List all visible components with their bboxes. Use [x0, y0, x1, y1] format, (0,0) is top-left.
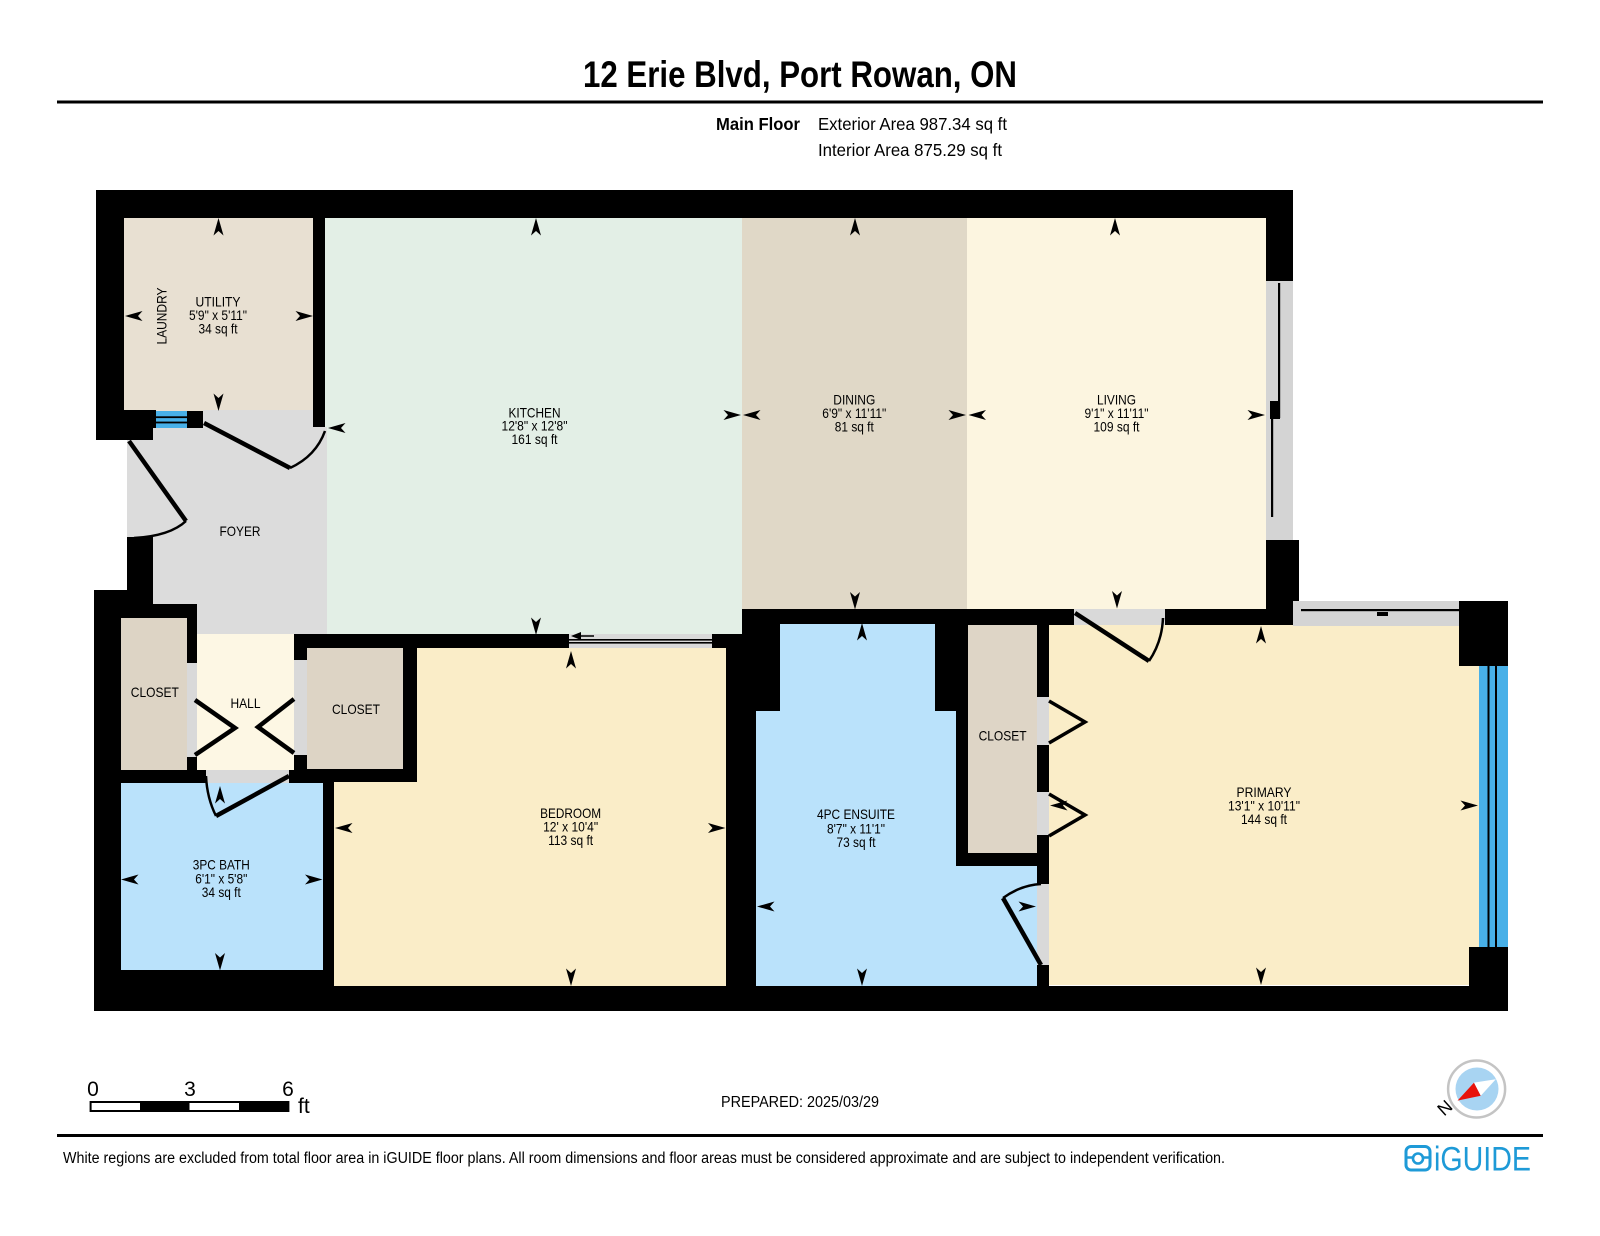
- svg-text:HALL: HALL: [231, 695, 261, 711]
- svg-text:73 sq ft: 73 sq ft: [837, 834, 876, 850]
- svg-text:CLOSET: CLOSET: [979, 728, 1027, 744]
- svg-text:Main Floor: Main Floor: [716, 114, 800, 134]
- svg-text:iGUIDE: iGUIDE: [1434, 1141, 1531, 1179]
- svg-text:ft: ft: [298, 1095, 310, 1118]
- svg-text:Exterior Area 987.34 sq ft: Exterior Area 987.34 sq ft: [818, 114, 1007, 134]
- svg-text:6: 6: [282, 1078, 294, 1101]
- svg-text:0: 0: [87, 1078, 99, 1101]
- svg-text:FOYER: FOYER: [220, 523, 261, 539]
- svg-text:LAUNDRY: LAUNDRY: [154, 287, 170, 345]
- svg-text:113 sq ft: 113 sq ft: [548, 832, 593, 848]
- svg-text:81 sq ft: 81 sq ft: [835, 419, 874, 435]
- svg-text:109 sq ft: 109 sq ft: [1094, 419, 1140, 435]
- svg-text:144 sq ft: 144 sq ft: [1241, 811, 1287, 827]
- svg-text:34 sq ft: 34 sq ft: [202, 884, 241, 900]
- svg-text:White regions are excluded fro: White regions are excluded from total fl…: [63, 1150, 1225, 1167]
- svg-text:12 Erie Blvd, Port Rowan, ON: 12 Erie Blvd, Port Rowan, ON: [583, 54, 1017, 95]
- svg-text:CLOSET: CLOSET: [131, 684, 179, 700]
- svg-text:CLOSET: CLOSET: [332, 701, 380, 717]
- svg-text:PREPARED: 2025/03/29: PREPARED: 2025/03/29: [721, 1094, 879, 1111]
- svg-text:3: 3: [184, 1078, 196, 1101]
- svg-text:161 sq ft: 161 sq ft: [512, 431, 558, 447]
- svg-text:Interior Area 875.29 sq ft: Interior Area 875.29 sq ft: [818, 140, 1002, 160]
- svg-text:34 sq ft: 34 sq ft: [199, 321, 238, 337]
